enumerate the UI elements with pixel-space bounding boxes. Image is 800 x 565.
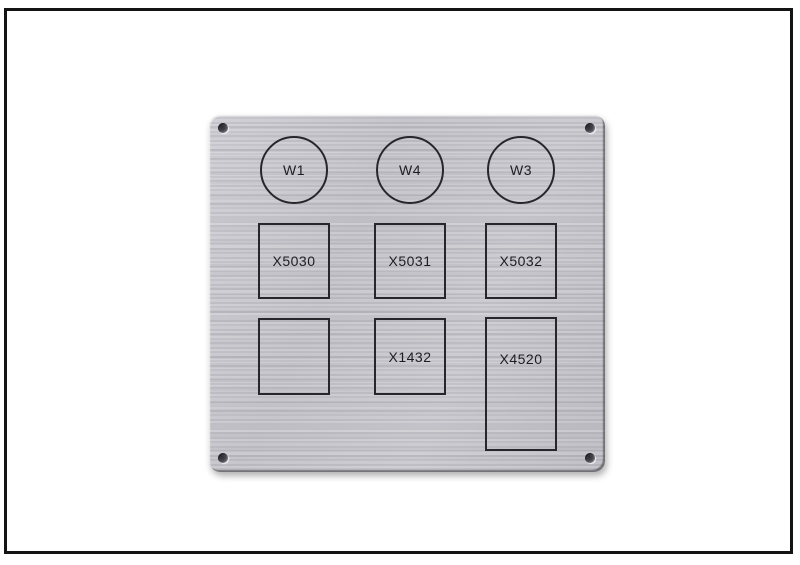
box-label: X1432 bbox=[389, 349, 432, 365]
box-label: X5032 bbox=[500, 253, 543, 269]
box-cutout-x4520: X4520 bbox=[485, 317, 557, 451]
circle-cutout-w1: W1 bbox=[260, 136, 328, 204]
circle-label: W3 bbox=[510, 162, 532, 178]
box-cutout-empty bbox=[258, 318, 330, 395]
box-label: X5030 bbox=[273, 253, 316, 269]
circle-cutout-w3: W3 bbox=[487, 136, 555, 204]
circle-label: W4 bbox=[399, 162, 421, 178]
screw-hole-top-right bbox=[585, 123, 595, 133]
circle-cutout-w4: W4 bbox=[376, 136, 444, 204]
box-cutout-x1432: X1432 bbox=[374, 318, 446, 395]
box-cutout-x5032: X5032 bbox=[485, 223, 557, 299]
box-label: X4520 bbox=[500, 319, 543, 367]
image-border-frame: W1 W4 W3 X5030 X5031 X5032 X1432 bbox=[4, 8, 793, 554]
screw-hole-bottom-left bbox=[218, 453, 228, 463]
product-photo: W1 W4 W3 X5030 X5031 X5032 X1432 bbox=[0, 0, 800, 565]
engraved-aluminium-panel: W1 W4 W3 X5030 X5031 X5032 X1432 bbox=[209, 115, 605, 472]
circle-label: W1 bbox=[283, 162, 305, 178]
box-label: X5031 bbox=[389, 253, 432, 269]
screw-hole-bottom-right bbox=[585, 453, 595, 463]
box-cutout-x5031: X5031 bbox=[374, 223, 446, 299]
screw-hole-top-left bbox=[218, 123, 228, 133]
box-cutout-x5030: X5030 bbox=[258, 223, 330, 299]
